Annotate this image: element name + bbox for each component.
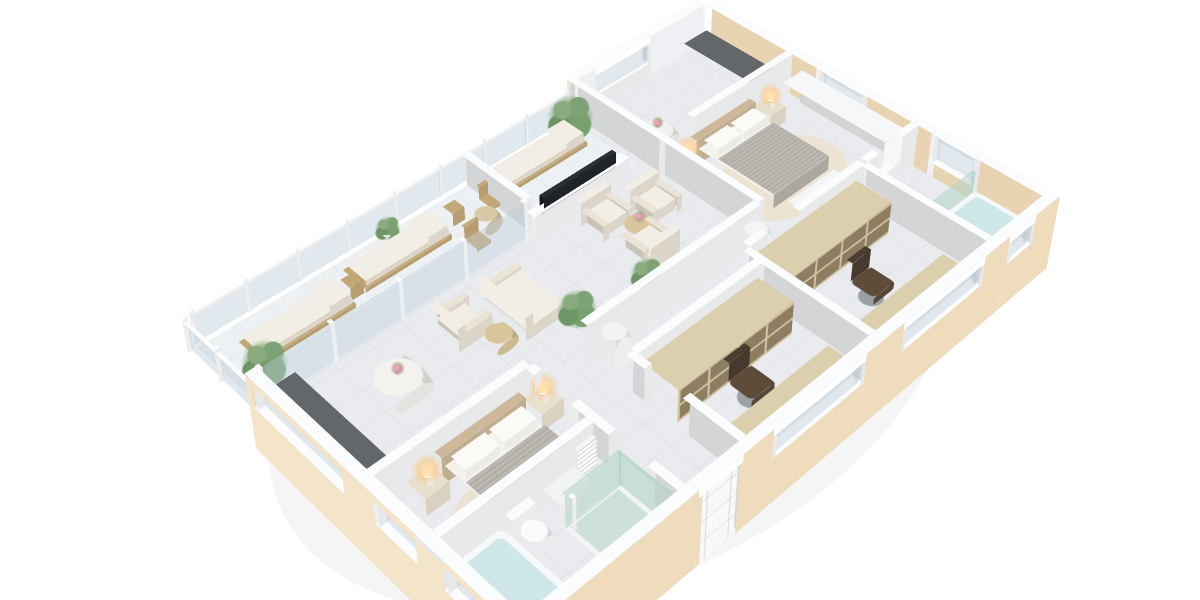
dining-table-flowers	[388, 359, 407, 378]
viewport	[0, 0, 1200, 600]
coffee-table-2-flowers	[630, 208, 647, 225]
scene	[180, 34, 1053, 600]
wall-hall-office1-a-south-face	[644, 364, 652, 412]
floorplan-3d-render	[0, 0, 1200, 600]
shower-bathroom2-column-south-face	[572, 496, 576, 532]
